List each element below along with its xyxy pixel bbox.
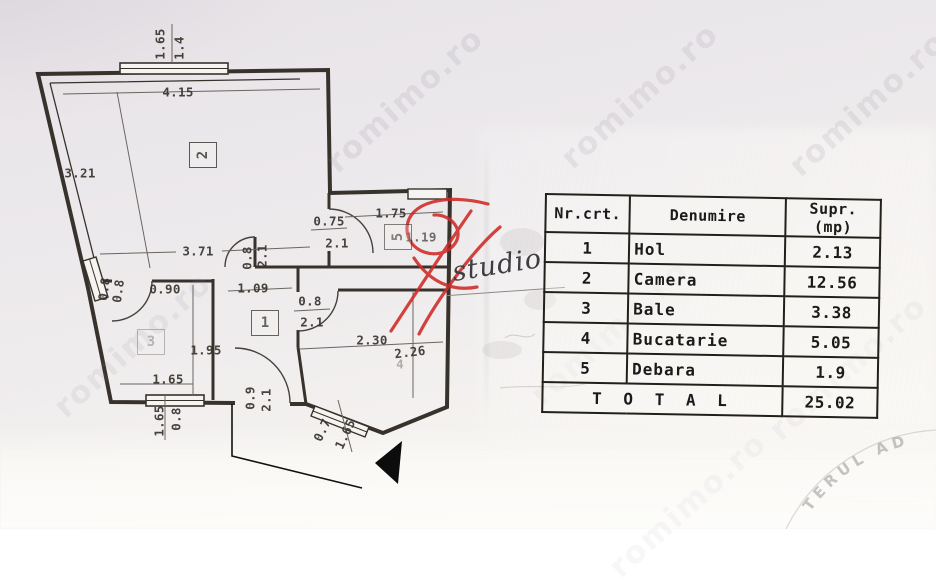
cell-area: 5.05 [783,326,878,358]
room-number-box: 1 [251,310,279,336]
cell-name: Bale [628,293,784,326]
floor-plan-photo: TERUL AD 1.651.44.153.213.711.750.752.11… [0,0,936,529]
dimension-label: 0.8 [109,278,127,303]
dimension-label: 2.1 [300,315,323,330]
cell-name: Bucatarie [627,323,783,356]
dimension-label: 2.1 [325,236,348,251]
dimension-label: 1.65 [153,28,168,59]
cell-nr: 2 [544,262,629,293]
stamp-arc [786,430,936,529]
cell-name: Debara [627,353,783,386]
dimension-label: 0.8 [169,407,184,430]
dimension-label: 1.95 [190,343,221,358]
dimension-label: 1.75 [375,206,406,221]
room-areas-table: Nr.crt. Denumire Supr.(mp) 1Hol2.132Came… [541,193,882,419]
arrow-marker [375,441,402,484]
dimension-label: 2.30 [356,333,387,348]
dimension-label: 1.4 [172,36,187,59]
dimension-label: 0.75 [313,214,344,229]
total-row: T O T A L 25.02 [542,382,877,418]
cell-area: 12.56 [784,266,879,298]
dimension-label: 0.8 [298,294,321,309]
cell-area: 3.38 [784,296,879,328]
dimension-label: 0.90 [149,282,180,297]
room-number-box: 2 [189,142,217,168]
room-number-box: 5 [384,224,412,250]
dimension-label: 1.65 [152,372,183,387]
dimension-label: 0.8 [240,246,255,269]
cell-area: 1.9 [783,356,878,388]
dimension-label: 0.9 [243,386,258,409]
col-header-area: Supr.(mp) [785,198,880,238]
dimension-label: 3.21 [64,166,95,181]
room-number-box: 3 [137,329,165,355]
dimension-label: 2.1 [259,388,274,411]
col-header-nr: Nr.crt. [545,194,630,233]
dimension-label: 1.65 [152,405,167,436]
stamp-text: TERUL AD [799,431,911,514]
cell-nr: 1 [545,232,630,263]
dimension-label: 1.09 [237,281,268,296]
total-label: T O T A L [542,382,783,416]
dimension-label: 4.15 [162,85,193,100]
dimension-label: 3.71 [182,244,213,259]
room-number: 1 [261,315,269,331]
cell-name: Hol [629,233,785,266]
room-number: 2 [195,151,211,159]
cell-nr: 5 [543,352,628,383]
room-number: 3 [147,334,155,350]
total-value: 25.02 [782,386,877,418]
cell-nr: 4 [543,322,628,353]
col-header-name: Denumire [630,195,787,236]
room-number: 5 [390,233,406,241]
cell-nr: 3 [544,292,629,323]
cell-name: Camera [628,263,784,296]
cell-area: 2.13 [785,236,880,268]
dimension-label: 2.1 [255,244,270,267]
dimension-label: 4 [396,357,404,372]
